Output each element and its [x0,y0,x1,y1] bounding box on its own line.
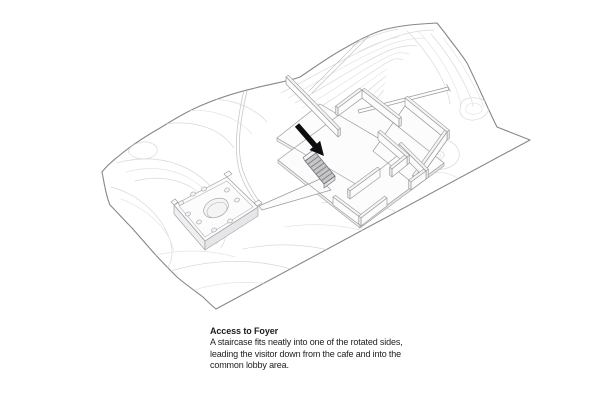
caption-title: Access to Foyer [210,325,442,337]
caption-line-1: A staircase fits neatly into one of the … [210,337,442,349]
caption: Access to Foyer A staircase fits neatly … [210,325,442,372]
caption-line-3: common lobby area. [210,360,442,372]
caption-line-2: leading the visitor down from the cafe a… [210,349,442,361]
